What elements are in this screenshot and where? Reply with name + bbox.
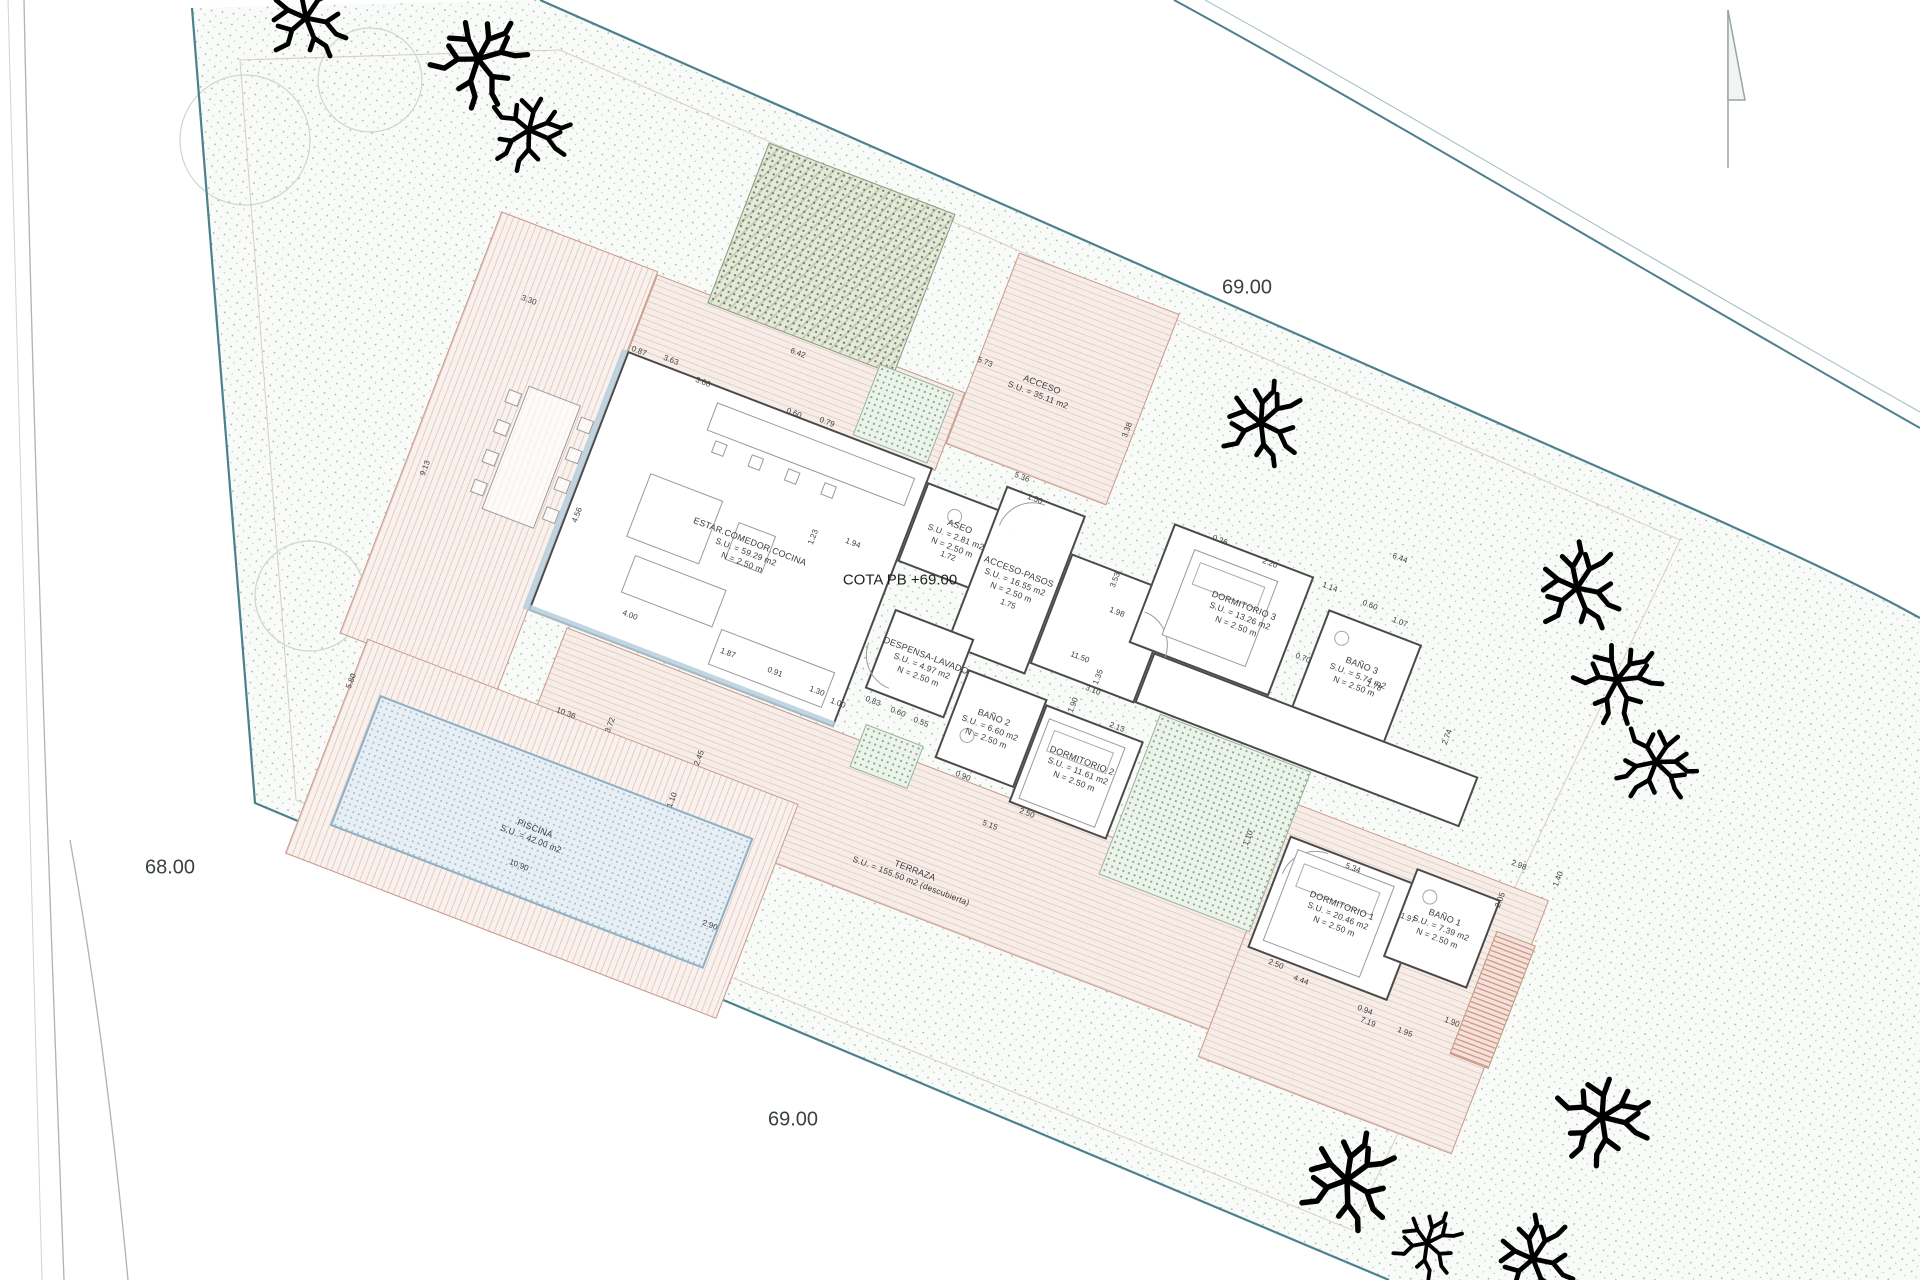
site-plan-canvas: ESTAR.COMEDOR.COCINAS.U. = 59.29 m2N = 2… — [0, 0, 1920, 1280]
north-arrow-icon — [1728, 10, 1745, 168]
contour-lines — [8, 0, 128, 1280]
